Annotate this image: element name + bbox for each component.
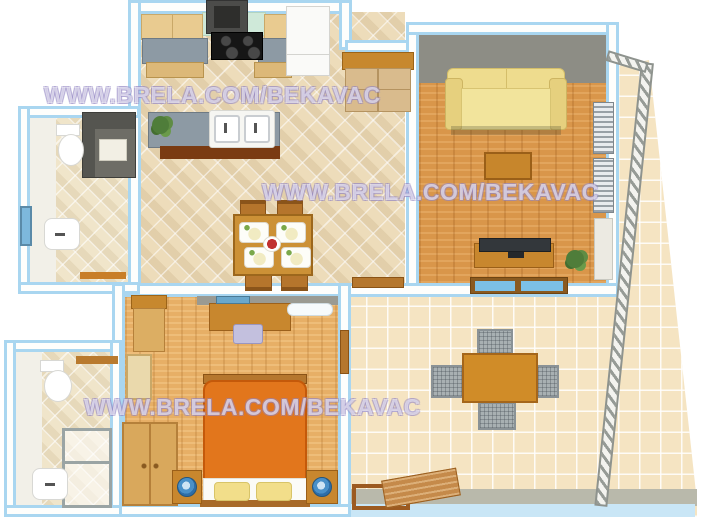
sofa-armrest-right: [549, 78, 567, 130]
bedroom-window: [216, 296, 250, 304]
cooktop: [211, 32, 263, 60]
range-hood-duct: [214, 6, 240, 28]
living-plant: [566, 250, 584, 268]
faucet-left: [224, 123, 227, 133]
watermark-center: WWW.BRELA.COM/BEKAVAC: [262, 179, 599, 206]
tv: [479, 238, 551, 252]
bathroom-top-wall-face: [30, 118, 56, 284]
balcony-door: [594, 218, 613, 280]
living-window: [470, 277, 568, 294]
bed-footboard: [200, 500, 310, 507]
counter-left: [142, 38, 208, 64]
outdoor-table: [462, 353, 538, 403]
sofa-seat: [461, 88, 551, 130]
living-window-pane-left: [475, 281, 515, 291]
sink-basin-left: [214, 115, 240, 143]
upper-cabinet-left: [141, 14, 203, 40]
place-setting-2: [276, 222, 306, 243]
fruit-bowl: [263, 236, 281, 252]
bedside-lamp-left: [177, 477, 197, 497]
watermark-bottom: WWW.BRELA.COM/BEKAVAC: [84, 394, 421, 421]
lower-cabinet-left: [146, 62, 204, 78]
washbasin-bottom: [32, 468, 68, 500]
bed-pillow-right: [256, 482, 292, 501]
bathroom-bottom-shelf: [76, 356, 118, 364]
outdoor-chair-bottom: [478, 402, 516, 430]
bathroom-top-threshold: [80, 272, 126, 279]
corner-cabinet-top: [131, 295, 167, 309]
sink-basin-right: [244, 115, 270, 143]
shower-cabin: [82, 112, 136, 178]
refrigerator: [286, 6, 330, 76]
upper-cabinet-right: [264, 14, 288, 40]
outdoor-chair-top: [477, 329, 513, 355]
bathroom-top-window: [20, 206, 32, 246]
bed-pillow-left: [214, 482, 250, 501]
outdoor-chair-left: [431, 365, 464, 398]
washbasin-top-faucet: [55, 233, 65, 236]
washbasin-bottom-faucet: [45, 483, 55, 486]
outdoor-chair-right: [536, 365, 559, 398]
bedroom-terrace-door: [340, 330, 349, 374]
bedside-lamp-right: [312, 477, 332, 497]
place-setting-4: [281, 247, 311, 268]
floor-plan: WWW.BRELA.COM/BEKAVAC WWW.BRELA.COM/BEKA…: [0, 0, 707, 517]
toilet-top-bowl: [58, 134, 84, 166]
faucet-right: [254, 123, 257, 133]
shower-enclosure-bar: [65, 461, 109, 464]
shutter-window-upper: [593, 102, 614, 154]
wall-bathroom-bottom-west: [4, 340, 16, 517]
watermark-top: WWW.BRELA.COM/BEKAVAC: [44, 82, 381, 109]
washbasin-top: [44, 218, 80, 250]
wall-bathroom-top-west: [18, 106, 30, 294]
wardrobe: [122, 422, 178, 506]
island-plant: [152, 116, 169, 134]
shower-sink-box: [99, 139, 127, 161]
coffee-table: [484, 152, 532, 180]
sofa-shadow: [451, 126, 561, 135]
range-hood: [206, 0, 248, 34]
desk-chair: [233, 324, 263, 344]
shower-enclosure: [62, 428, 112, 508]
toilet-bottom-bowl: [44, 370, 72, 402]
air-conditioner: [287, 303, 333, 316]
corner-cabinet: [133, 308, 165, 352]
sofa: [445, 66, 567, 136]
wall-bathroom-bottom-north: [4, 340, 122, 352]
living-window-pane-right: [521, 281, 563, 291]
tv-base: [508, 252, 524, 258]
terrace-door-threshold: [352, 277, 404, 288]
wall-living-top: [406, 22, 619, 35]
sink-unit: [209, 110, 275, 148]
